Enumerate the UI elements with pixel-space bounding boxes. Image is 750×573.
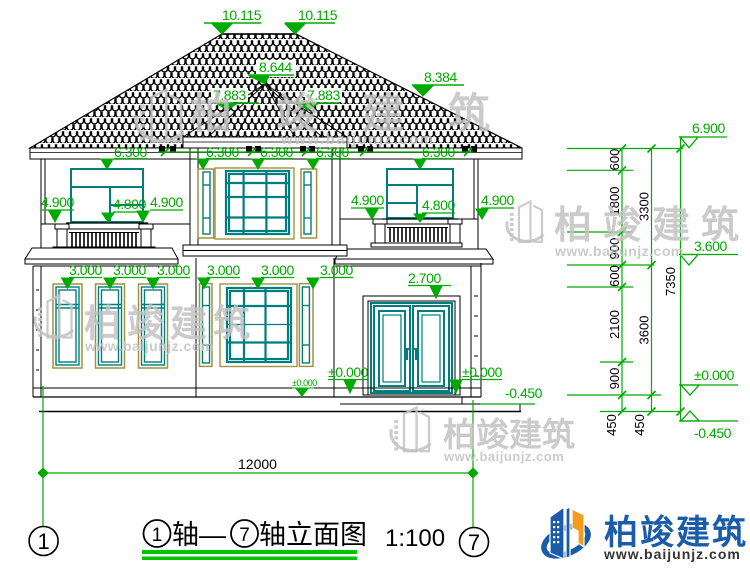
svg-text:3.000: 3.000 [69, 262, 102, 278]
svg-text:3600: 3600 [637, 316, 652, 345]
svg-text:7350: 7350 [663, 267, 678, 296]
svg-text:450: 450 [632, 414, 647, 436]
svg-text:4.900: 4.900 [41, 194, 74, 210]
svg-text:3.000: 3.000 [320, 262, 353, 278]
svg-text:900: 900 [607, 368, 622, 390]
svg-text:1: 1 [152, 525, 163, 546]
svg-text:4.800: 4.800 [422, 197, 455, 213]
svg-text:www.baijunjz.com: www.baijunjz.com [84, 338, 214, 354]
svg-text:4.900: 4.900 [150, 194, 183, 210]
svg-text:8.644: 8.644 [259, 59, 292, 75]
svg-text:450: 450 [604, 414, 619, 436]
svg-text:轴立面图: 轴立面图 [259, 520, 367, 550]
svg-text:柏竣建筑: 柏竣建筑 [443, 416, 575, 453]
svg-text:600: 600 [607, 265, 622, 287]
svg-text:www.baijunjz.com: www.baijunjz.com [554, 243, 684, 259]
svg-text:www.baijunjz.com: www.baijunjz.com [280, 131, 434, 148]
svg-text:8.384: 8.384 [424, 69, 457, 85]
svg-text:7: 7 [239, 525, 250, 546]
svg-text:-0.450: -0.450 [505, 385, 543, 401]
svg-text:4.900: 4.900 [351, 192, 384, 208]
svg-text:1: 1 [37, 529, 49, 554]
svg-text:6.900: 6.900 [692, 120, 725, 136]
svg-text:3.000: 3.000 [261, 262, 294, 278]
svg-text:柏竣建筑: 柏竣建筑 [190, 90, 534, 137]
svg-text:6.300: 6.300 [114, 144, 147, 160]
svg-text:±0.000: ±0.000 [292, 378, 317, 388]
svg-text:2100: 2100 [607, 310, 622, 339]
svg-text:±0.000: ±0.000 [694, 367, 735, 383]
svg-text:12000: 12000 [238, 456, 277, 472]
svg-text:3.000: 3.000 [157, 262, 190, 278]
svg-text:柏竣建筑: 柏竣建筑 [554, 205, 750, 247]
svg-text:www.baijunjz.com: www.baijunjz.com [443, 449, 564, 464]
svg-text:-0.450: -0.450 [694, 425, 732, 441]
svg-text:±0.000: ±0.000 [328, 364, 369, 380]
svg-text:1:100: 1:100 [385, 525, 445, 552]
svg-text:2.700: 2.700 [408, 270, 441, 286]
svg-text:10.115: 10.115 [298, 7, 338, 23]
svg-text:www.baijunjz.com: www.baijunjz.com [603, 546, 741, 562]
svg-text:±0.000: ±0.000 [462, 364, 503, 380]
svg-text:4.900: 4.900 [481, 192, 514, 208]
svg-text:4.800: 4.800 [113, 196, 146, 212]
svg-text:10.115: 10.115 [222, 7, 262, 23]
svg-text:3.000: 3.000 [113, 262, 146, 278]
svg-text:7: 7 [468, 530, 480, 555]
svg-text:轴—: 轴— [172, 520, 226, 550]
svg-text:600: 600 [607, 149, 622, 171]
svg-text:3.000: 3.000 [207, 262, 240, 278]
